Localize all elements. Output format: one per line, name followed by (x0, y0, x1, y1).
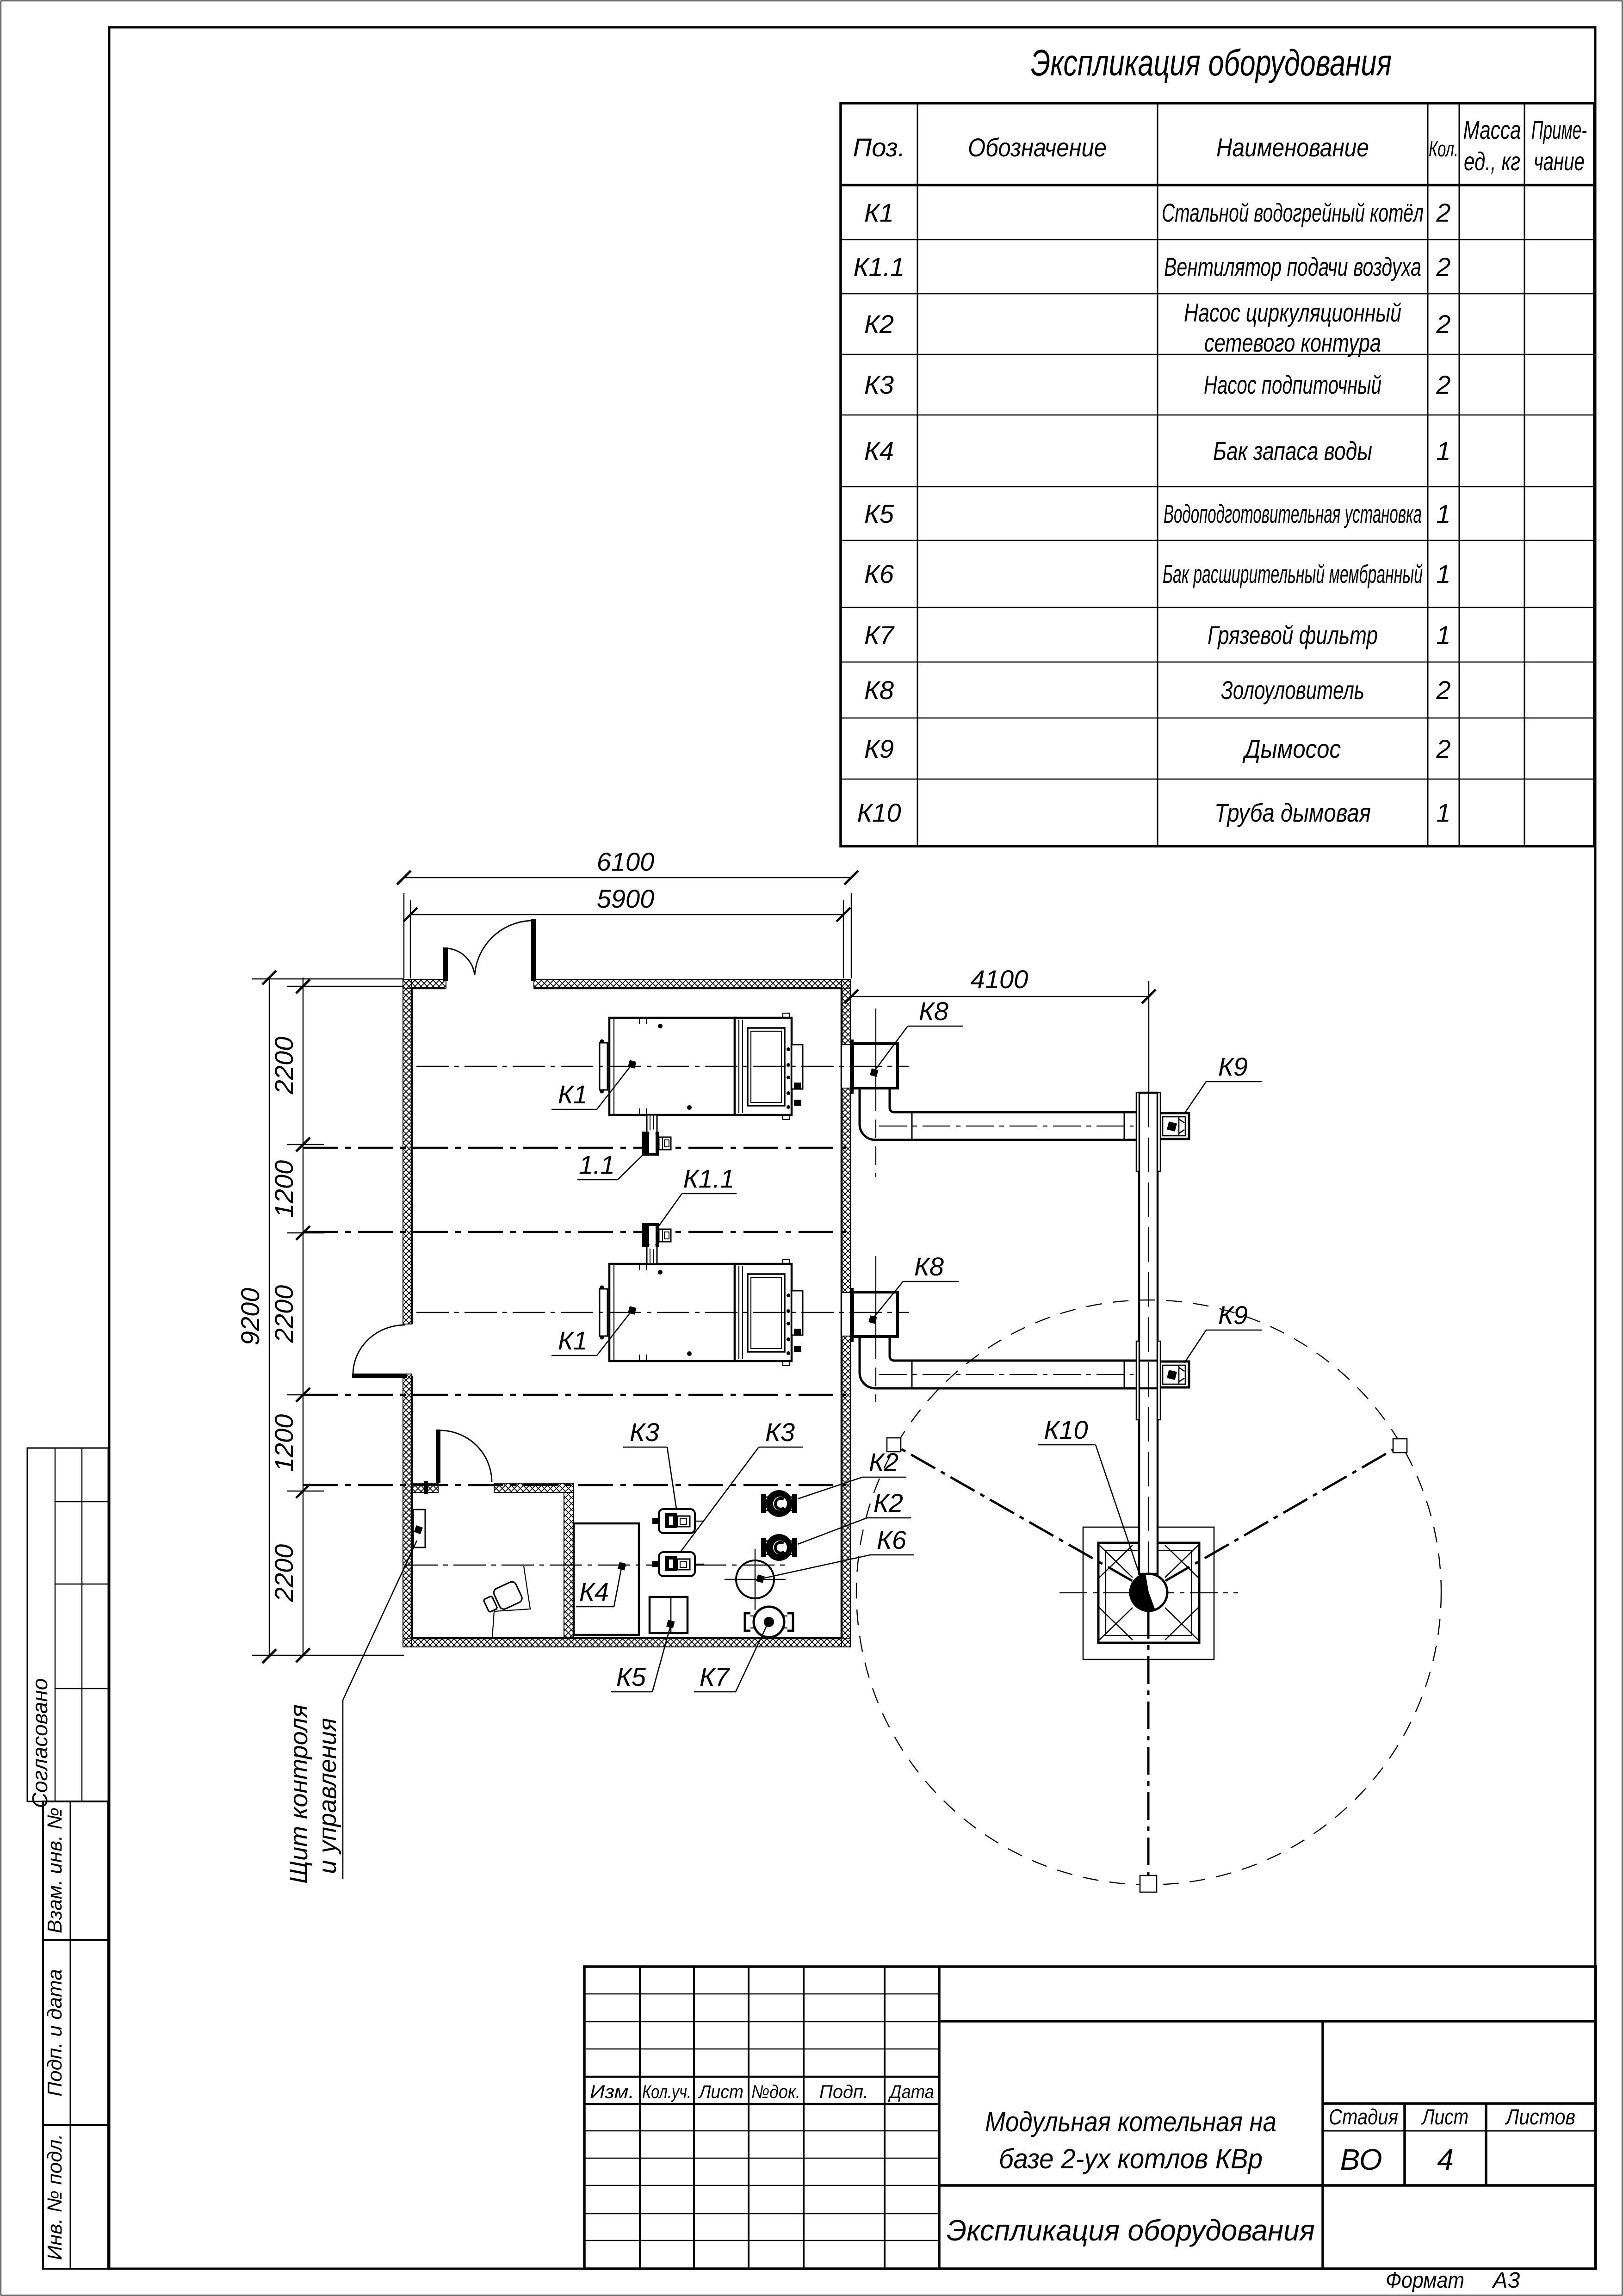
svg-text:К8: К8 (919, 996, 948, 1026)
svg-text:2: 2 (1436, 198, 1450, 227)
svg-text:К8: К8 (864, 675, 894, 705)
svg-text:К5: К5 (864, 499, 894, 528)
svg-text:Стальной водогрейный котёл: Стальной водогрейный котёл (1162, 198, 1424, 227)
svg-text:1200: 1200 (269, 1160, 298, 1218)
svg-text:К7: К7 (864, 620, 895, 650)
svg-text:ВО: ВО (1340, 2143, 1382, 2176)
svg-text:Листов: Листов (1505, 2104, 1575, 2129)
svg-text:Кол.уч.: Кол.уч. (642, 2082, 691, 2102)
svg-text:1: 1 (1436, 436, 1450, 465)
svg-text:1: 1 (1436, 559, 1450, 588)
svg-text:Бак запаса воды: Бак запаса воды (1213, 436, 1372, 465)
svg-text:Дата: Дата (888, 2082, 934, 2102)
svg-text:Бак расширительный мембранный: Бак расширительный мембранный (1163, 559, 1423, 588)
svg-text:Насос подпиточный: Насос подпиточный (1204, 370, 1381, 399)
svg-text:К6: К6 (877, 1525, 907, 1554)
svg-text:К1.1: К1.1 (683, 1164, 735, 1193)
svg-text:Грязевой фильтр: Грязевой фильтр (1208, 620, 1378, 650)
svg-text:Насос циркуляционный: Насос циркуляционный (1184, 298, 1401, 327)
svg-text:Дымосос: Дымосос (1242, 734, 1341, 763)
svg-text:1: 1 (1436, 798, 1450, 827)
svg-text:2: 2 (1436, 675, 1450, 705)
svg-text:сетевого контура: сетевого контура (1204, 328, 1381, 357)
svg-text:Формат: Формат (1386, 2268, 1464, 2293)
svg-text:2200: 2200 (269, 1544, 298, 1603)
svg-text:Вентилятор подачи воздуха: Вентилятор подачи воздуха (1164, 252, 1421, 281)
svg-text:К1: К1 (558, 1326, 588, 1355)
svg-text:Лист: Лист (698, 2082, 743, 2102)
svg-text:ед., кг: ед., кг (1464, 147, 1520, 176)
svg-text:4: 4 (1437, 2143, 1454, 2176)
svg-text:2200: 2200 (269, 1285, 298, 1343)
svg-text:2200: 2200 (269, 1037, 298, 1095)
svg-text:2: 2 (1436, 370, 1450, 399)
svg-text:1.1: 1.1 (579, 1150, 615, 1179)
svg-text:Стадия: Стадия (1329, 2104, 1398, 2129)
svg-text:К4: К4 (579, 1577, 609, 1606)
svg-text:1: 1 (1436, 499, 1450, 528)
svg-text:2: 2 (1436, 734, 1450, 763)
svg-text:Масса: Масса (1463, 115, 1521, 144)
svg-text:1: 1 (1436, 620, 1450, 650)
svg-text:К9: К9 (1218, 1300, 1248, 1330)
svg-text:К6: К6 (864, 559, 894, 588)
svg-text:Экспликация оборудования: Экспликация оборудования (947, 2214, 1315, 2247)
svg-text:К3: К3 (765, 1417, 795, 1447)
svg-text:К5: К5 (616, 1662, 646, 1691)
svg-text:К7: К7 (700, 1662, 730, 1691)
svg-text:Поз.: Поз. (853, 133, 905, 162)
svg-text:К2: К2 (873, 1488, 903, 1517)
svg-text:К10: К10 (1044, 1415, 1088, 1444)
svg-text:и управления: и управления (314, 1718, 341, 1874)
svg-text:4100: 4100 (971, 965, 1028, 994)
svg-text:К9: К9 (864, 734, 894, 763)
svg-text:К2: К2 (869, 1448, 898, 1477)
svg-text:Согласовано: Согласовано (28, 1678, 52, 1808)
svg-text:Взам. инв. №: Взам. инв. № (43, 1807, 66, 1933)
svg-text:Обозначение: Обозначение (968, 133, 1107, 162)
svg-text:6100: 6100 (597, 847, 655, 876)
svg-text:А3: А3 (1492, 2268, 1520, 2293)
svg-text:Наименование: Наименование (1216, 133, 1369, 162)
svg-text:Кол.: Кол. (1429, 136, 1458, 161)
svg-text:Труба дымовая: Труба дымовая (1214, 798, 1371, 827)
svg-text:чание: чание (1534, 147, 1585, 176)
svg-text:2: 2 (1436, 252, 1450, 281)
svg-text:К3: К3 (630, 1417, 659, 1447)
svg-text:К3: К3 (864, 370, 894, 399)
svg-text:К9: К9 (1218, 1052, 1248, 1081)
svg-text:Щит контроля: Щит контроля (285, 1704, 313, 1884)
svg-text:К1.1: К1.1 (854, 252, 905, 281)
svg-text:9200: 9200 (235, 1288, 265, 1346)
svg-text:К10: К10 (857, 798, 901, 827)
svg-text:Приме-: Приме- (1531, 115, 1587, 144)
svg-text:№док.: №док. (751, 2082, 800, 2102)
svg-text:Изм.: Изм. (590, 2082, 634, 2102)
svg-text:Золоуловитель: Золоуловитель (1221, 675, 1364, 705)
svg-text:Водоподготовительная установка: Водоподготовительная установка (1164, 499, 1422, 528)
svg-text:2: 2 (1436, 309, 1450, 339)
svg-text:Подп. и дата: Подп. и дата (43, 1969, 66, 2096)
svg-text:5900: 5900 (597, 884, 655, 913)
svg-text:К1: К1 (558, 1080, 588, 1109)
svg-text:Лист: Лист (1421, 2104, 1468, 2129)
svg-text:Инв. № подл.: Инв. № подл. (43, 2134, 66, 2260)
svg-text:К2: К2 (864, 309, 894, 339)
svg-text:Экспликация оборудования: Экспликация оборудования (1031, 42, 1392, 83)
svg-text:К4: К4 (864, 436, 894, 465)
svg-text:Подп.: Подп. (819, 2082, 868, 2102)
svg-text:К8: К8 (914, 1252, 944, 1281)
svg-text:Модульная котельная на: Модульная котельная на (985, 2106, 1276, 2137)
svg-text:1200: 1200 (269, 1414, 298, 1472)
svg-text:К1: К1 (864, 198, 894, 227)
svg-text:базе 2-ух котлов КВр: базе 2-ух котлов КВр (999, 2143, 1263, 2174)
